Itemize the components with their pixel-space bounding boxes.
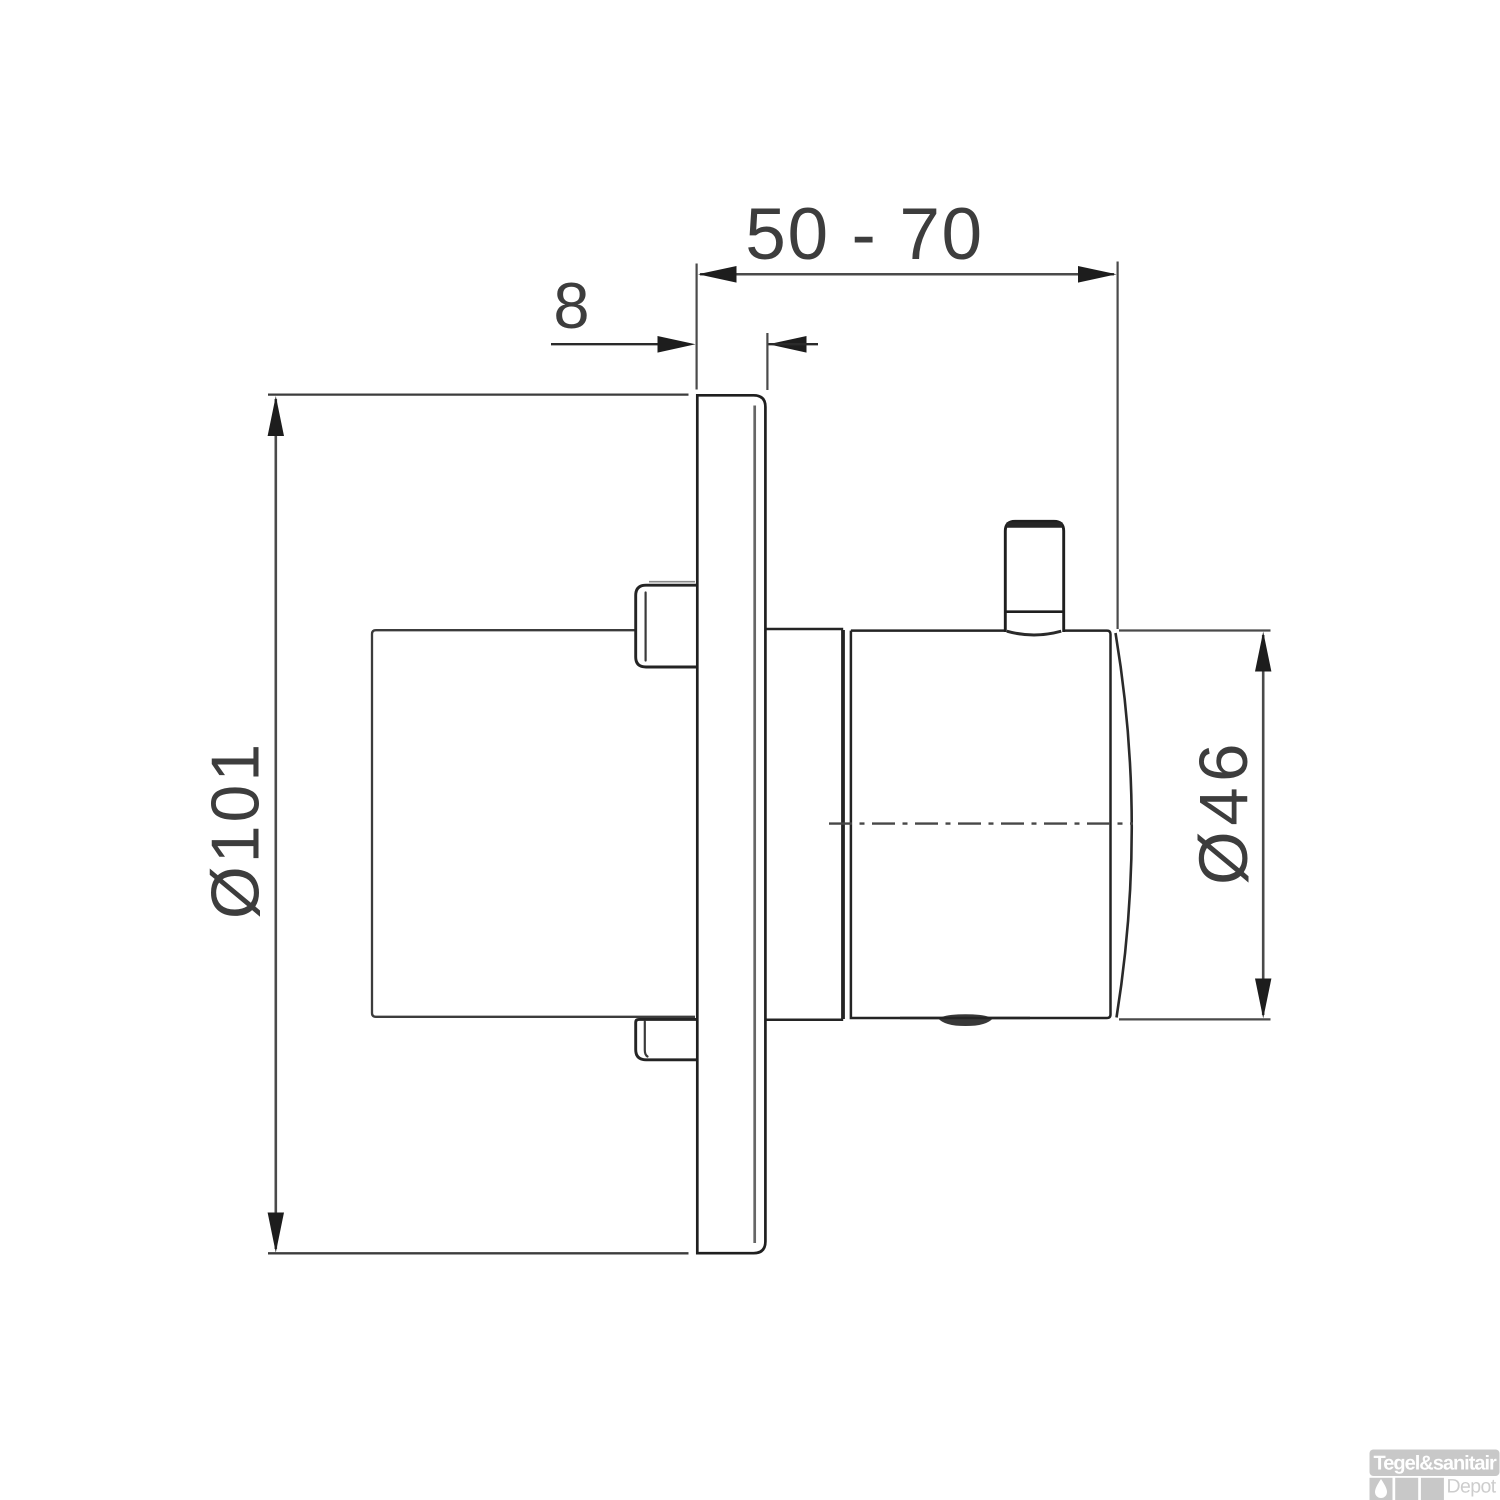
svg-text:Tegel&sanitair: Tegel&sanitair: [1373, 1453, 1497, 1475]
svg-text:Ø101: Ø101: [198, 741, 274, 919]
svg-text:Ø46: Ø46: [1185, 738, 1262, 885]
svg-text:Depot: Depot: [1446, 1476, 1496, 1498]
svg-text:8: 8: [553, 269, 589, 342]
svg-text:50 - 70: 50 - 70: [745, 194, 983, 275]
